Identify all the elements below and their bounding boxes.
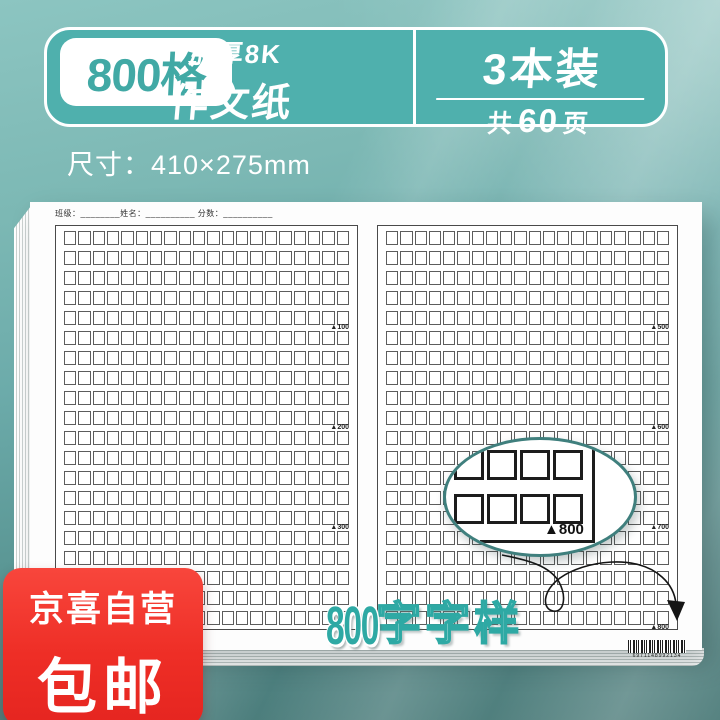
grid-cell xyxy=(628,391,640,405)
grid-cell xyxy=(164,471,176,485)
grid-cell xyxy=(222,231,234,245)
grid-cell xyxy=(415,571,427,585)
grid-cell xyxy=(586,391,598,405)
grid-cell xyxy=(236,491,248,505)
grid-cell xyxy=(207,291,219,305)
grid-cell xyxy=(643,611,655,625)
grid-cell xyxy=(222,611,234,625)
grid-cell xyxy=(500,331,512,345)
grid-cell xyxy=(628,331,640,345)
grid-cell xyxy=(472,571,484,585)
grid-cell xyxy=(64,471,76,485)
grid-cell xyxy=(386,511,398,525)
magnifier-grid-right-border xyxy=(592,440,595,543)
grid-cell xyxy=(337,471,349,485)
grid-cell xyxy=(486,331,498,345)
grid-cell xyxy=(78,331,90,345)
grid-cell xyxy=(136,451,148,465)
grid-cell xyxy=(628,431,640,445)
grid-cell xyxy=(643,511,655,525)
grid-cell xyxy=(308,391,320,405)
grid-cell xyxy=(400,511,412,525)
grid-cell xyxy=(337,291,349,305)
grid-cell xyxy=(543,371,555,385)
grid-cell xyxy=(386,331,398,345)
grid-cell xyxy=(472,431,484,445)
grid-row xyxy=(64,231,349,245)
grid-row xyxy=(64,551,349,565)
grid-cell xyxy=(571,231,583,245)
grid-cell xyxy=(250,551,262,565)
grid-cell xyxy=(571,391,583,405)
grid-cell xyxy=(136,391,148,405)
grid-cell xyxy=(250,271,262,285)
grid-cell xyxy=(457,311,469,325)
grid-cell xyxy=(514,351,526,365)
grid-cell xyxy=(250,611,262,625)
grid-cell xyxy=(308,451,320,465)
grid-cell xyxy=(150,531,162,545)
grid-row xyxy=(386,251,669,265)
grid-cell xyxy=(265,411,277,425)
grid-cell xyxy=(78,271,90,285)
grid-cell xyxy=(64,251,76,265)
grid-cell xyxy=(78,451,90,465)
grid-cell xyxy=(472,271,484,285)
grid-cell xyxy=(386,291,398,305)
grid-cell xyxy=(429,231,441,245)
page-header: 班级：________姓名：__________ 分数：__________ xyxy=(55,208,273,219)
grid-cell xyxy=(279,591,291,605)
grid-cell xyxy=(107,351,119,365)
grid-cell xyxy=(121,311,133,325)
grid-cell xyxy=(150,391,162,405)
grid-cell xyxy=(614,391,626,405)
grid-cell xyxy=(472,231,484,245)
grid-cell xyxy=(337,451,349,465)
grid-cell xyxy=(529,411,541,425)
grid-cell xyxy=(557,391,569,405)
banner-divider xyxy=(413,30,416,124)
grid-cell xyxy=(150,431,162,445)
grid-cell xyxy=(628,551,640,565)
magnifier-cell xyxy=(454,450,484,480)
grid-cell xyxy=(472,391,484,405)
grid-cell xyxy=(400,331,412,345)
grid-cell xyxy=(308,351,320,365)
grid-cell xyxy=(337,531,349,545)
grid-cell xyxy=(543,291,555,305)
grid-cell xyxy=(614,291,626,305)
grid-cell xyxy=(179,491,191,505)
grid-cell xyxy=(472,551,484,565)
grid-cell xyxy=(457,371,469,385)
grid-cell xyxy=(93,251,105,265)
grid-cell xyxy=(236,271,248,285)
grid-cell xyxy=(415,451,427,465)
grid-cell xyxy=(443,531,455,545)
grid-cell xyxy=(308,371,320,385)
grid-cell xyxy=(179,511,191,525)
grid-cell xyxy=(93,431,105,445)
grid-cell xyxy=(250,571,262,585)
grid-cell xyxy=(78,511,90,525)
grid-cell xyxy=(193,231,205,245)
grid-cell xyxy=(386,531,398,545)
grid-cell xyxy=(529,611,541,625)
promo-badge: 京喜自营 包邮 xyxy=(3,568,203,720)
grid-cell xyxy=(121,511,133,525)
grid-cell xyxy=(136,491,148,505)
grid-cell xyxy=(643,311,655,325)
grid-cell xyxy=(400,571,412,585)
grid-cell xyxy=(657,431,669,445)
grid-cell xyxy=(643,351,655,365)
grid-cell xyxy=(322,351,334,365)
grid-cell xyxy=(586,231,598,245)
grid-cell xyxy=(121,331,133,345)
grid-cell xyxy=(429,351,441,365)
grid-cell xyxy=(337,551,349,565)
grid-cell xyxy=(472,371,484,385)
grid-cell xyxy=(279,351,291,365)
grid-cell xyxy=(64,491,76,505)
grid-cell xyxy=(400,311,412,325)
grid-cell xyxy=(222,391,234,405)
row-marker: ▲100 xyxy=(330,324,349,331)
magnifier-label: ▲800 xyxy=(544,521,584,538)
grid-cell xyxy=(193,431,205,445)
grid-cell xyxy=(179,311,191,325)
row-marker: ▲700 xyxy=(650,524,669,531)
grid-cell xyxy=(64,371,76,385)
grid-cell xyxy=(265,231,277,245)
grid-cell xyxy=(457,431,469,445)
grid-cell xyxy=(514,571,526,585)
grid-cell xyxy=(207,471,219,485)
grid-cell xyxy=(400,271,412,285)
total-pages-label: 共60页 xyxy=(423,102,654,140)
grid-cell xyxy=(93,471,105,485)
grid-cell xyxy=(628,311,640,325)
grid-cell xyxy=(207,531,219,545)
grid-cell xyxy=(93,491,105,505)
grid-cell xyxy=(472,311,484,325)
grid-cell xyxy=(586,331,598,345)
grid-cell xyxy=(557,611,569,625)
grid-cell xyxy=(150,451,162,465)
grid-cell xyxy=(322,451,334,465)
grid-cell xyxy=(657,371,669,385)
grid-cell xyxy=(657,571,669,585)
grid-cell xyxy=(179,531,191,545)
grid-cell xyxy=(265,531,277,545)
grid-cell xyxy=(600,271,612,285)
grid-row xyxy=(64,331,349,345)
grid-cell xyxy=(443,231,455,245)
grid-cell xyxy=(236,331,248,345)
grid-cell xyxy=(443,431,455,445)
grid-row xyxy=(386,331,669,345)
grid-cell xyxy=(386,351,398,365)
grid-cell xyxy=(265,571,277,585)
grid-cell xyxy=(322,291,334,305)
grid-cell xyxy=(337,251,349,265)
grid-cell xyxy=(107,451,119,465)
grid-cell xyxy=(93,291,105,305)
grid-cell xyxy=(150,551,162,565)
grid-cell xyxy=(628,351,640,365)
grid-cell xyxy=(294,471,306,485)
grid-cell xyxy=(457,231,469,245)
grid-cell xyxy=(250,491,262,505)
grid-cell xyxy=(150,411,162,425)
grid-cell xyxy=(93,531,105,545)
grid-cell xyxy=(643,531,655,545)
grid-row xyxy=(386,371,669,385)
grid-cell xyxy=(600,231,612,245)
grid-cell xyxy=(600,351,612,365)
grid-cell xyxy=(337,331,349,345)
grid-cell xyxy=(121,551,133,565)
grid-cell xyxy=(64,291,76,305)
grid-cell xyxy=(150,311,162,325)
grid-cell xyxy=(415,511,427,525)
grid-cell xyxy=(429,271,441,285)
grid-cell xyxy=(164,231,176,245)
grid-cell xyxy=(429,531,441,545)
grid-cell xyxy=(657,451,669,465)
grid-cell xyxy=(207,311,219,325)
grid-cell xyxy=(308,431,320,445)
grid-cell xyxy=(429,551,441,565)
grid-cell xyxy=(193,391,205,405)
grid-cell xyxy=(657,291,669,305)
grid-cell xyxy=(514,291,526,305)
grid-cell xyxy=(121,271,133,285)
grid-cell xyxy=(337,231,349,245)
grid-cell xyxy=(179,291,191,305)
grid-cell xyxy=(543,611,555,625)
grid-cell xyxy=(643,391,655,405)
grid-cell xyxy=(164,451,176,465)
grid-cell xyxy=(571,571,583,585)
grid-cell xyxy=(222,251,234,265)
grid-cell xyxy=(429,371,441,385)
grid-cell xyxy=(150,511,162,525)
grid-cell xyxy=(279,431,291,445)
grid-cell xyxy=(514,231,526,245)
grid-cell xyxy=(400,351,412,365)
grid-cell xyxy=(457,271,469,285)
grid-cell xyxy=(529,571,541,585)
grid-cell xyxy=(78,351,90,365)
grid-cell xyxy=(443,551,455,565)
grid-cell xyxy=(107,511,119,525)
grid-cell xyxy=(614,231,626,245)
grid-cell xyxy=(193,411,205,425)
grid-cell xyxy=(121,291,133,305)
grid-cell xyxy=(136,371,148,385)
grid-row xyxy=(64,291,349,305)
grid-row xyxy=(64,431,349,445)
grid-cell xyxy=(400,471,412,485)
watermark-number: 800 xyxy=(326,599,378,653)
grid-cell xyxy=(486,351,498,365)
grid-cell xyxy=(279,311,291,325)
grid-cell xyxy=(250,331,262,345)
grid-cell xyxy=(265,271,277,285)
grid-cell xyxy=(222,511,234,525)
grid-cell xyxy=(179,371,191,385)
grid-cell xyxy=(64,311,76,325)
grid-cell xyxy=(294,451,306,465)
grid-row xyxy=(386,351,669,365)
grid-cell xyxy=(121,471,133,485)
grid-cell xyxy=(93,551,105,565)
grid-cell xyxy=(400,411,412,425)
magnifier-cell-row xyxy=(454,494,583,524)
grid-cell xyxy=(294,551,306,565)
grid-cell xyxy=(222,331,234,345)
grid-cell xyxy=(429,491,441,505)
grid-cell xyxy=(279,371,291,385)
grid-cell xyxy=(64,391,76,405)
grid-cell xyxy=(486,291,498,305)
grid-cell xyxy=(136,271,148,285)
grid-cell xyxy=(294,431,306,445)
grid-cell xyxy=(193,531,205,545)
grid-cell xyxy=(207,511,219,525)
grid-cell xyxy=(250,511,262,525)
grid-cell xyxy=(78,531,90,545)
grid-cell xyxy=(557,231,569,245)
grid-cell xyxy=(265,311,277,325)
size-label: 尺寸：410×275mm xyxy=(67,143,311,182)
grid-cell xyxy=(337,391,349,405)
grid-cell xyxy=(614,571,626,585)
barcode: 6971148992134 xyxy=(628,640,686,659)
grid-cell xyxy=(322,231,334,245)
grid-cell xyxy=(643,471,655,485)
grid-cell xyxy=(614,551,626,565)
grid-cell xyxy=(93,411,105,425)
grid-cell xyxy=(78,231,90,245)
grid-cell xyxy=(429,571,441,585)
grid-cell xyxy=(107,271,119,285)
grid-cell xyxy=(164,551,176,565)
grid-cell xyxy=(207,411,219,425)
grid-cell xyxy=(193,491,205,505)
grid-cell xyxy=(322,331,334,345)
grid-cell xyxy=(250,311,262,325)
grid-cell xyxy=(628,571,640,585)
grid-cell xyxy=(279,411,291,425)
grid-cell xyxy=(586,351,598,365)
grid-row xyxy=(386,571,669,585)
grid-cell xyxy=(614,251,626,265)
grid-cell xyxy=(121,231,133,245)
grid-row: ▲300 xyxy=(64,511,349,525)
grid-cell xyxy=(400,491,412,505)
grid-cell xyxy=(308,251,320,265)
grid-cell xyxy=(265,591,277,605)
grid-cell xyxy=(279,531,291,545)
grid-cell xyxy=(557,571,569,585)
grid-cell xyxy=(164,271,176,285)
grid-cell xyxy=(179,471,191,485)
magnifier-cell xyxy=(487,494,517,524)
grid-cell xyxy=(250,411,262,425)
grid-cell xyxy=(93,311,105,325)
grid-row xyxy=(64,271,349,285)
grid-cell xyxy=(337,311,349,325)
grid-cell xyxy=(207,591,219,605)
grid-cell xyxy=(265,291,277,305)
grid-cell xyxy=(400,391,412,405)
grid-cell xyxy=(628,291,640,305)
grid-cell xyxy=(78,411,90,425)
grid-cell xyxy=(543,331,555,345)
grid-cell xyxy=(93,231,105,245)
grid-cell xyxy=(657,391,669,405)
grid-cell xyxy=(337,431,349,445)
magnifier-cell xyxy=(553,494,583,524)
grid-cell xyxy=(193,251,205,265)
grid-cell xyxy=(457,571,469,585)
grid-cell xyxy=(179,551,191,565)
grid-cell xyxy=(265,251,277,265)
grid-cell xyxy=(265,431,277,445)
grid-cell xyxy=(557,251,569,265)
grid-cell xyxy=(415,251,427,265)
grid-cell xyxy=(222,271,234,285)
grid-cell xyxy=(121,391,133,405)
grid-cell xyxy=(64,411,76,425)
grid-cell xyxy=(222,571,234,585)
grid-cell xyxy=(543,391,555,405)
grid-cell xyxy=(400,531,412,545)
grid-cell xyxy=(557,371,569,385)
grid-cell xyxy=(236,451,248,465)
grid-cell xyxy=(236,411,248,425)
grid-cell xyxy=(294,531,306,545)
row-marker: ▲300 xyxy=(330,524,349,531)
grid-row xyxy=(64,251,349,265)
grid-cell xyxy=(294,351,306,365)
grid-cell xyxy=(529,311,541,325)
grid-cell xyxy=(308,571,320,585)
grid-cell xyxy=(279,571,291,585)
grid-cell xyxy=(657,331,669,345)
grid-cell xyxy=(193,311,205,325)
grid-cell xyxy=(643,251,655,265)
grid-cell xyxy=(236,571,248,585)
grid-cell xyxy=(500,371,512,385)
grid-cell xyxy=(250,471,262,485)
grid-cell xyxy=(308,551,320,565)
grid-cell xyxy=(657,351,669,365)
grid-cell xyxy=(557,591,569,605)
grid-cell xyxy=(443,391,455,405)
grid-cell xyxy=(193,471,205,485)
grid-cell xyxy=(628,591,640,605)
grid-cell xyxy=(657,271,669,285)
grid-cell xyxy=(614,611,626,625)
grid-cell xyxy=(294,611,306,625)
grid-cell xyxy=(136,291,148,305)
grid-cell xyxy=(294,511,306,525)
